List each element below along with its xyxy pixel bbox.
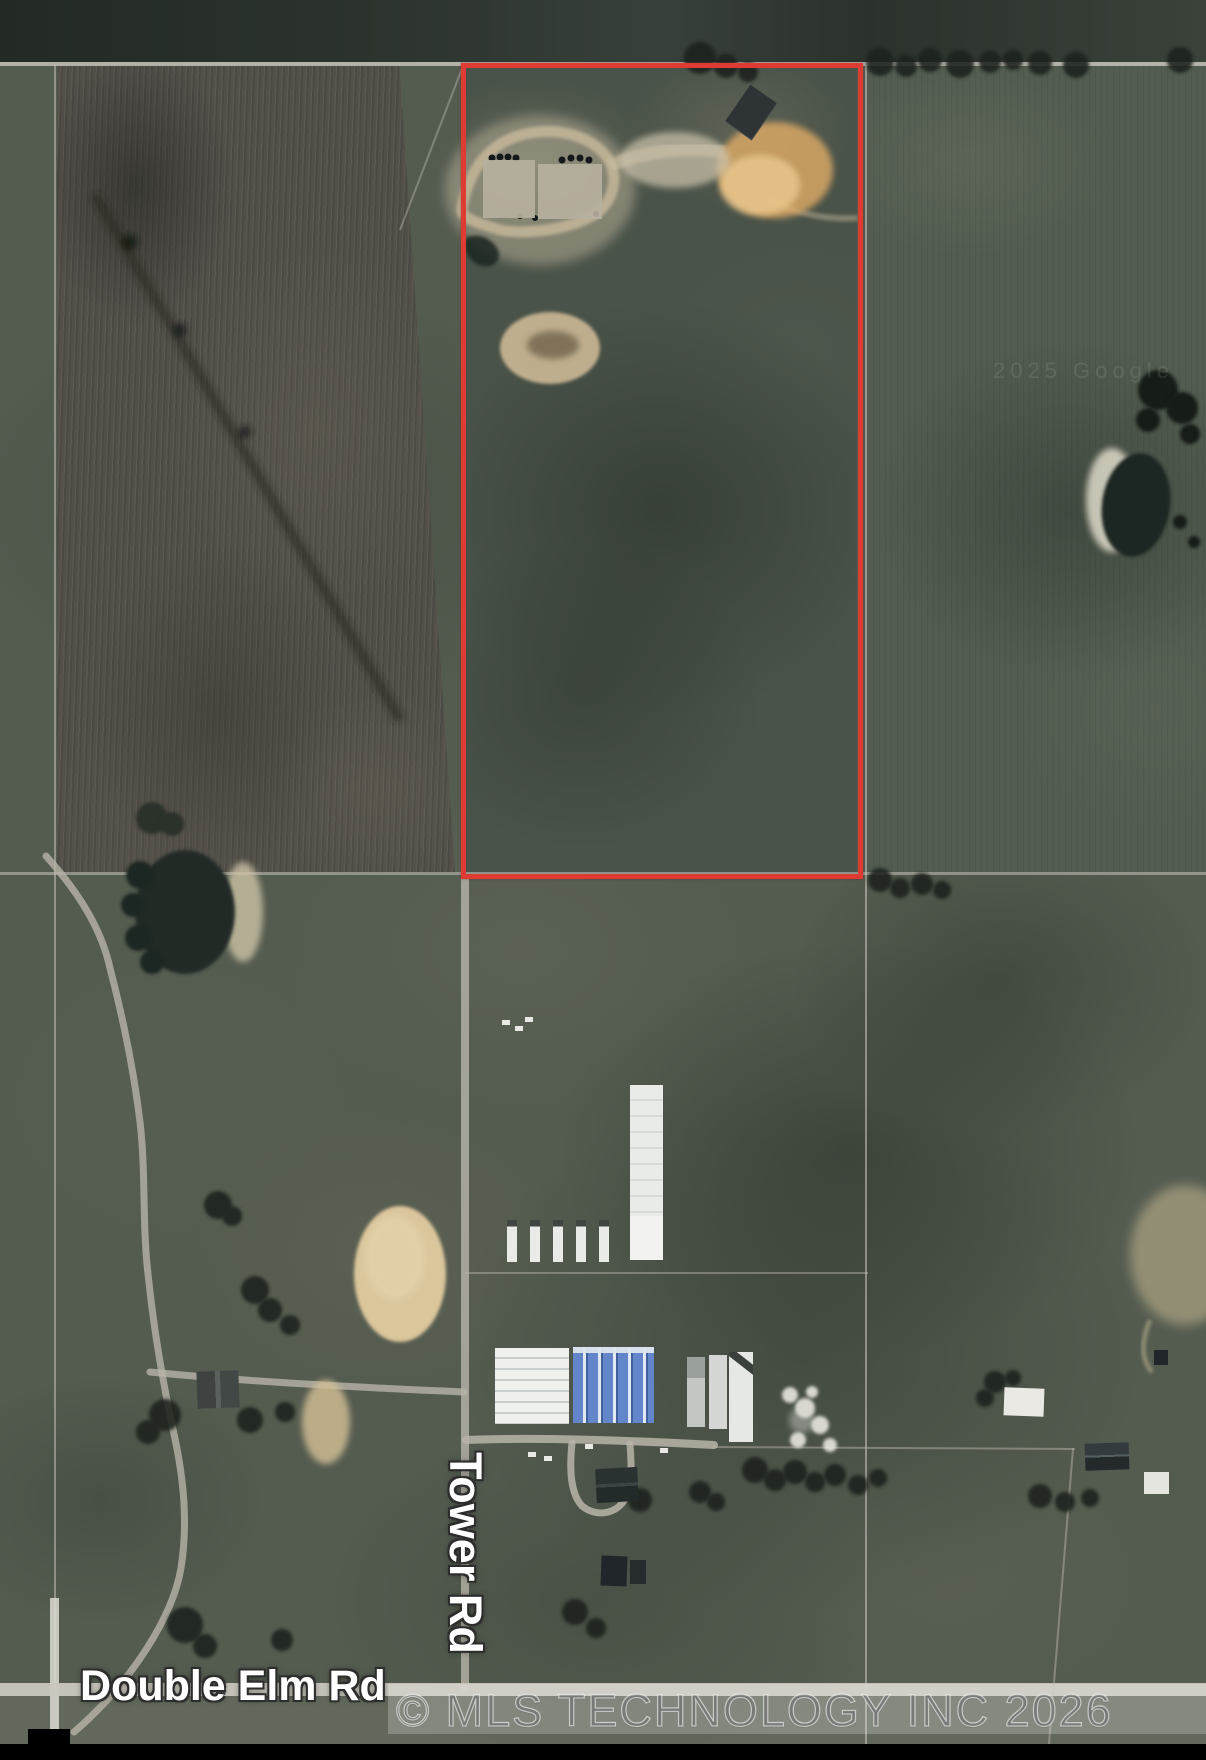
- trailer-1: [507, 1220, 517, 1262]
- white-house-southeast: [1004, 1387, 1045, 1416]
- trailer-3: [553, 1220, 563, 1262]
- small-dark-structure: [1154, 1350, 1168, 1365]
- roof-streak: [729, 1352, 753, 1376]
- trailer-2: [530, 1220, 540, 1262]
- vehicle: [544, 1456, 552, 1461]
- field-drainage-channel: [95, 195, 400, 720]
- vehicle: [528, 1452, 536, 1457]
- road-label-double-elm-rd: Double Elm Rd: [80, 1662, 386, 1711]
- vehicle: [502, 1020, 510, 1025]
- imagery-credit: 2025 Google: [993, 358, 1174, 384]
- trailer-5: [599, 1220, 609, 1262]
- letterbox-bar-bottom: [0, 1744, 1206, 1760]
- blue-barn: [573, 1347, 654, 1423]
- long-white-building-south: [630, 1216, 663, 1260]
- letterbox-notch: [28, 1729, 70, 1746]
- vehicle: [525, 1017, 533, 1022]
- homestead-house: [595, 1467, 639, 1503]
- watermark-bar: © MLS TECHNOLOGY INC 2026: [388, 1684, 1206, 1734]
- white-barn-c: [729, 1352, 753, 1442]
- white-shed-southeast: [1144, 1472, 1169, 1494]
- gray-barn-b: [709, 1355, 727, 1429]
- white-barn: [495, 1348, 569, 1424]
- driveways: [46, 856, 1074, 1744]
- farm-house-west: [196, 1370, 239, 1408]
- debris-patches: [782, 1386, 837, 1452]
- property-boundary: [461, 63, 863, 879]
- right-pond: [1086, 370, 1200, 561]
- vehicle: [660, 1448, 668, 1453]
- road-label-tower-rd: Tower Rd: [439, 1452, 491, 1654]
- homestead-shed-a: [600, 1556, 627, 1587]
- sand-areas: [302, 1185, 1206, 1464]
- vehicle: [585, 1444, 593, 1449]
- watermark-text: © MLS TECHNOLOGY INC 2026: [396, 1685, 1113, 1737]
- trailer-4: [576, 1220, 586, 1262]
- gray-barn-a: [687, 1357, 705, 1427]
- homestead-shed-b: [630, 1560, 646, 1584]
- long-white-building: [630, 1085, 663, 1218]
- left-pond: [121, 802, 263, 974]
- map-canvas[interactable]: 2025 Google Tower Rd Double Elm Rd © MLS…: [0, 0, 1206, 1760]
- dark-building-southeast: [1085, 1442, 1130, 1471]
- vehicle: [515, 1026, 523, 1031]
